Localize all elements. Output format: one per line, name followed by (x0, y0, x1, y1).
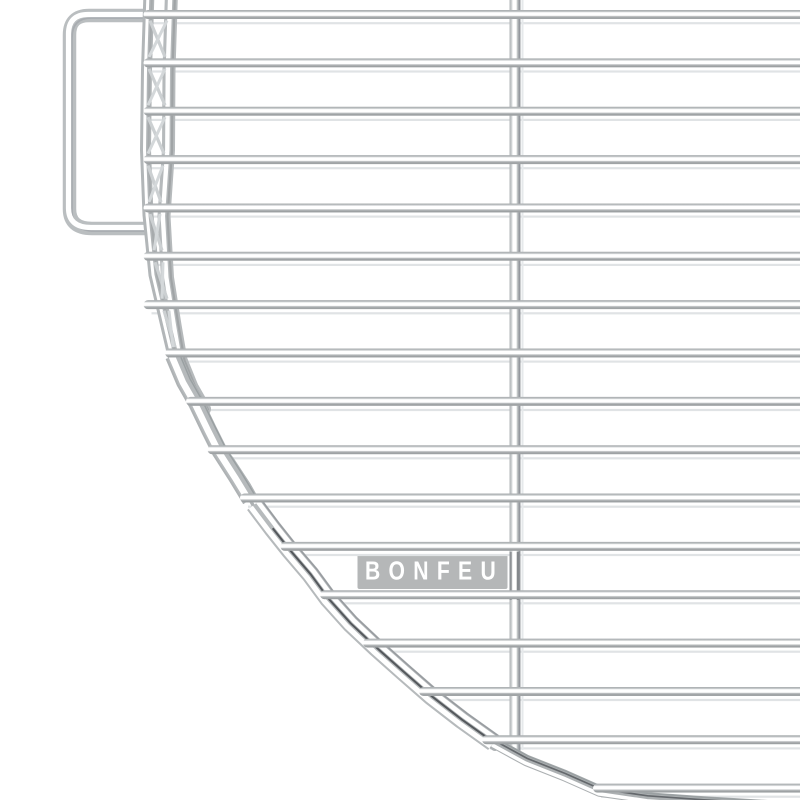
svg-text:BONFEU: BONFEU (365, 558, 504, 586)
